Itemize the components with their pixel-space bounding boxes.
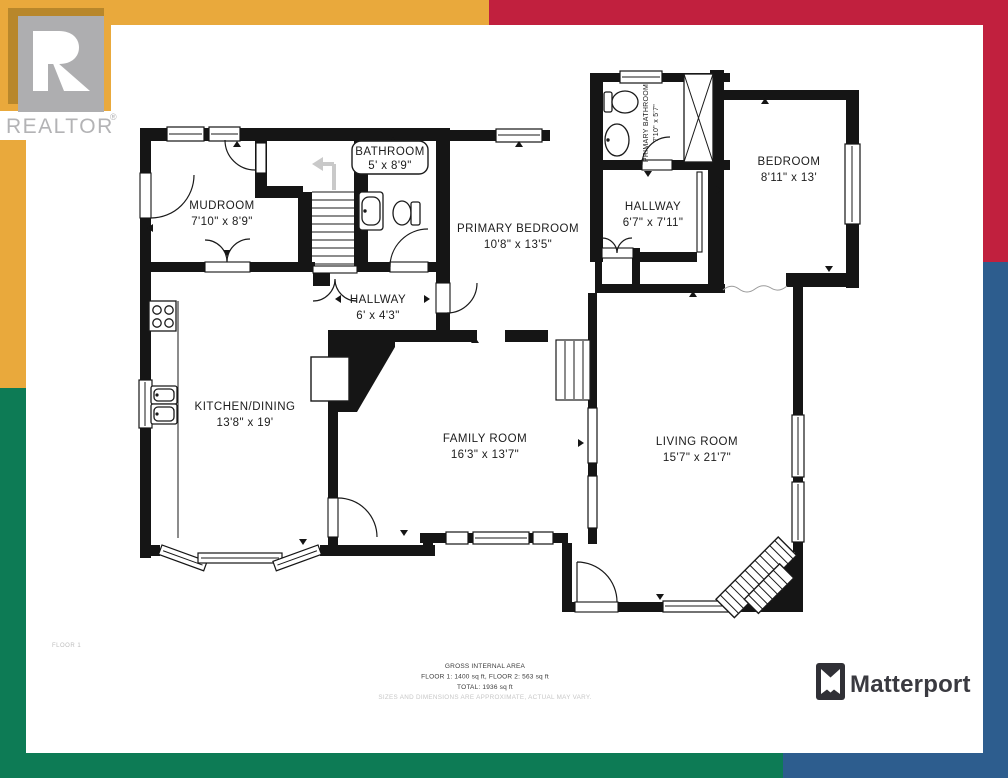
room-label-hallway-upper: HALLWAY (625, 201, 681, 213)
room-label-primary-bathroom: PRIMARY BATHROOM (643, 84, 650, 162)
room-dims-living-room: 15'7" x 21'7" (663, 452, 731, 464)
plan-break-squiggle (723, 286, 787, 292)
footer-area-summary: GROSS INTERNAL AREA FLOOR 1: 1400 sq ft,… (378, 663, 591, 701)
room-label-hallway-lower: HALLWAY (350, 294, 406, 306)
frame-bottom-green (0, 753, 783, 778)
room-label-primary-bedroom: PRIMARY BEDROOM (457, 223, 579, 235)
room-label-living-room: LIVING ROOM (656, 436, 738, 448)
room-dims-hallway-upper: 6'7" x 7'11" (623, 217, 684, 229)
room-label-mudroom: MUDROOM (189, 200, 254, 212)
room-label-bedroom: BEDROOM (758, 156, 821, 168)
frame-left-green (0, 388, 26, 753)
realtor-logo: REALTOR ® (0, 0, 117, 138)
room-dims-family-room: 16'3" x 13'7" (451, 449, 519, 461)
opening-markers (147, 98, 833, 600)
realtor-registered-mark: ® (110, 112, 117, 122)
frame-right-blue (983, 262, 1008, 778)
walls (140, 70, 859, 612)
matterport-logo: Matterport (816, 663, 971, 700)
room-dims-kitchen-dining: 13'8" x 19' (217, 417, 274, 429)
matterport-wordmark: Matterport (850, 671, 971, 698)
bathroom-sink-icon (359, 192, 383, 230)
room-dims-bathroom: 5' x 8'9" (368, 160, 411, 172)
primary-sink-icon (605, 124, 629, 156)
room-label-family-room: FAMILY ROOM (443, 433, 527, 445)
room-dims-bedroom: 8'11" x 13' (761, 172, 817, 184)
stove-icon (149, 301, 176, 331)
bathroom-toilet-icon (393, 201, 420, 225)
footer-total-area: TOTAL: 1936 sq ft (457, 684, 513, 691)
floorplan-sheet: REALTOR ® (0, 0, 1008, 778)
frame-top-red (489, 0, 1008, 25)
footer-disclaimer: SIZES AND DIMENSIONS ARE APPROXIMATE, AC… (378, 694, 591, 701)
realtor-wordmark: REALTOR (6, 115, 114, 138)
chimney-hearth (311, 357, 349, 401)
footer-floor-areas: FLOOR 1: 1400 sq ft, FLOOR 2: 563 sq ft (421, 674, 549, 681)
kitchen-sink-icon (151, 386, 177, 424)
windows (139, 71, 860, 612)
staircase (312, 157, 354, 264)
frame-bottom-blue (783, 753, 1008, 778)
room-dims-primary-bedroom: 10'8" x 13'5" (484, 239, 552, 251)
shower-icon (684, 74, 713, 162)
frame-left-gold (0, 140, 26, 388)
room-label-kitchen-dining: KITCHEN/DINING (195, 401, 296, 413)
frame-right-red (983, 25, 1008, 262)
stairs-direction-arrow (312, 157, 334, 190)
realtor-logo-gray-square (18, 16, 104, 112)
room-dims-hallway-lower: 6' x 4'3" (356, 310, 399, 322)
footer-title: GROSS INTERNAL AREA (445, 663, 526, 670)
room-dims-primary-bathroom: 7'10" x 5'7" (653, 104, 660, 142)
room-dims-mudroom: 7'10" x 8'9" (191, 216, 252, 228)
room-label-bathroom: BATHROOM (355, 146, 425, 158)
primary-toilet-icon (604, 91, 638, 113)
floor-tag: FLOOR 1 (52, 643, 81, 649)
bay-window (159, 544, 322, 571)
